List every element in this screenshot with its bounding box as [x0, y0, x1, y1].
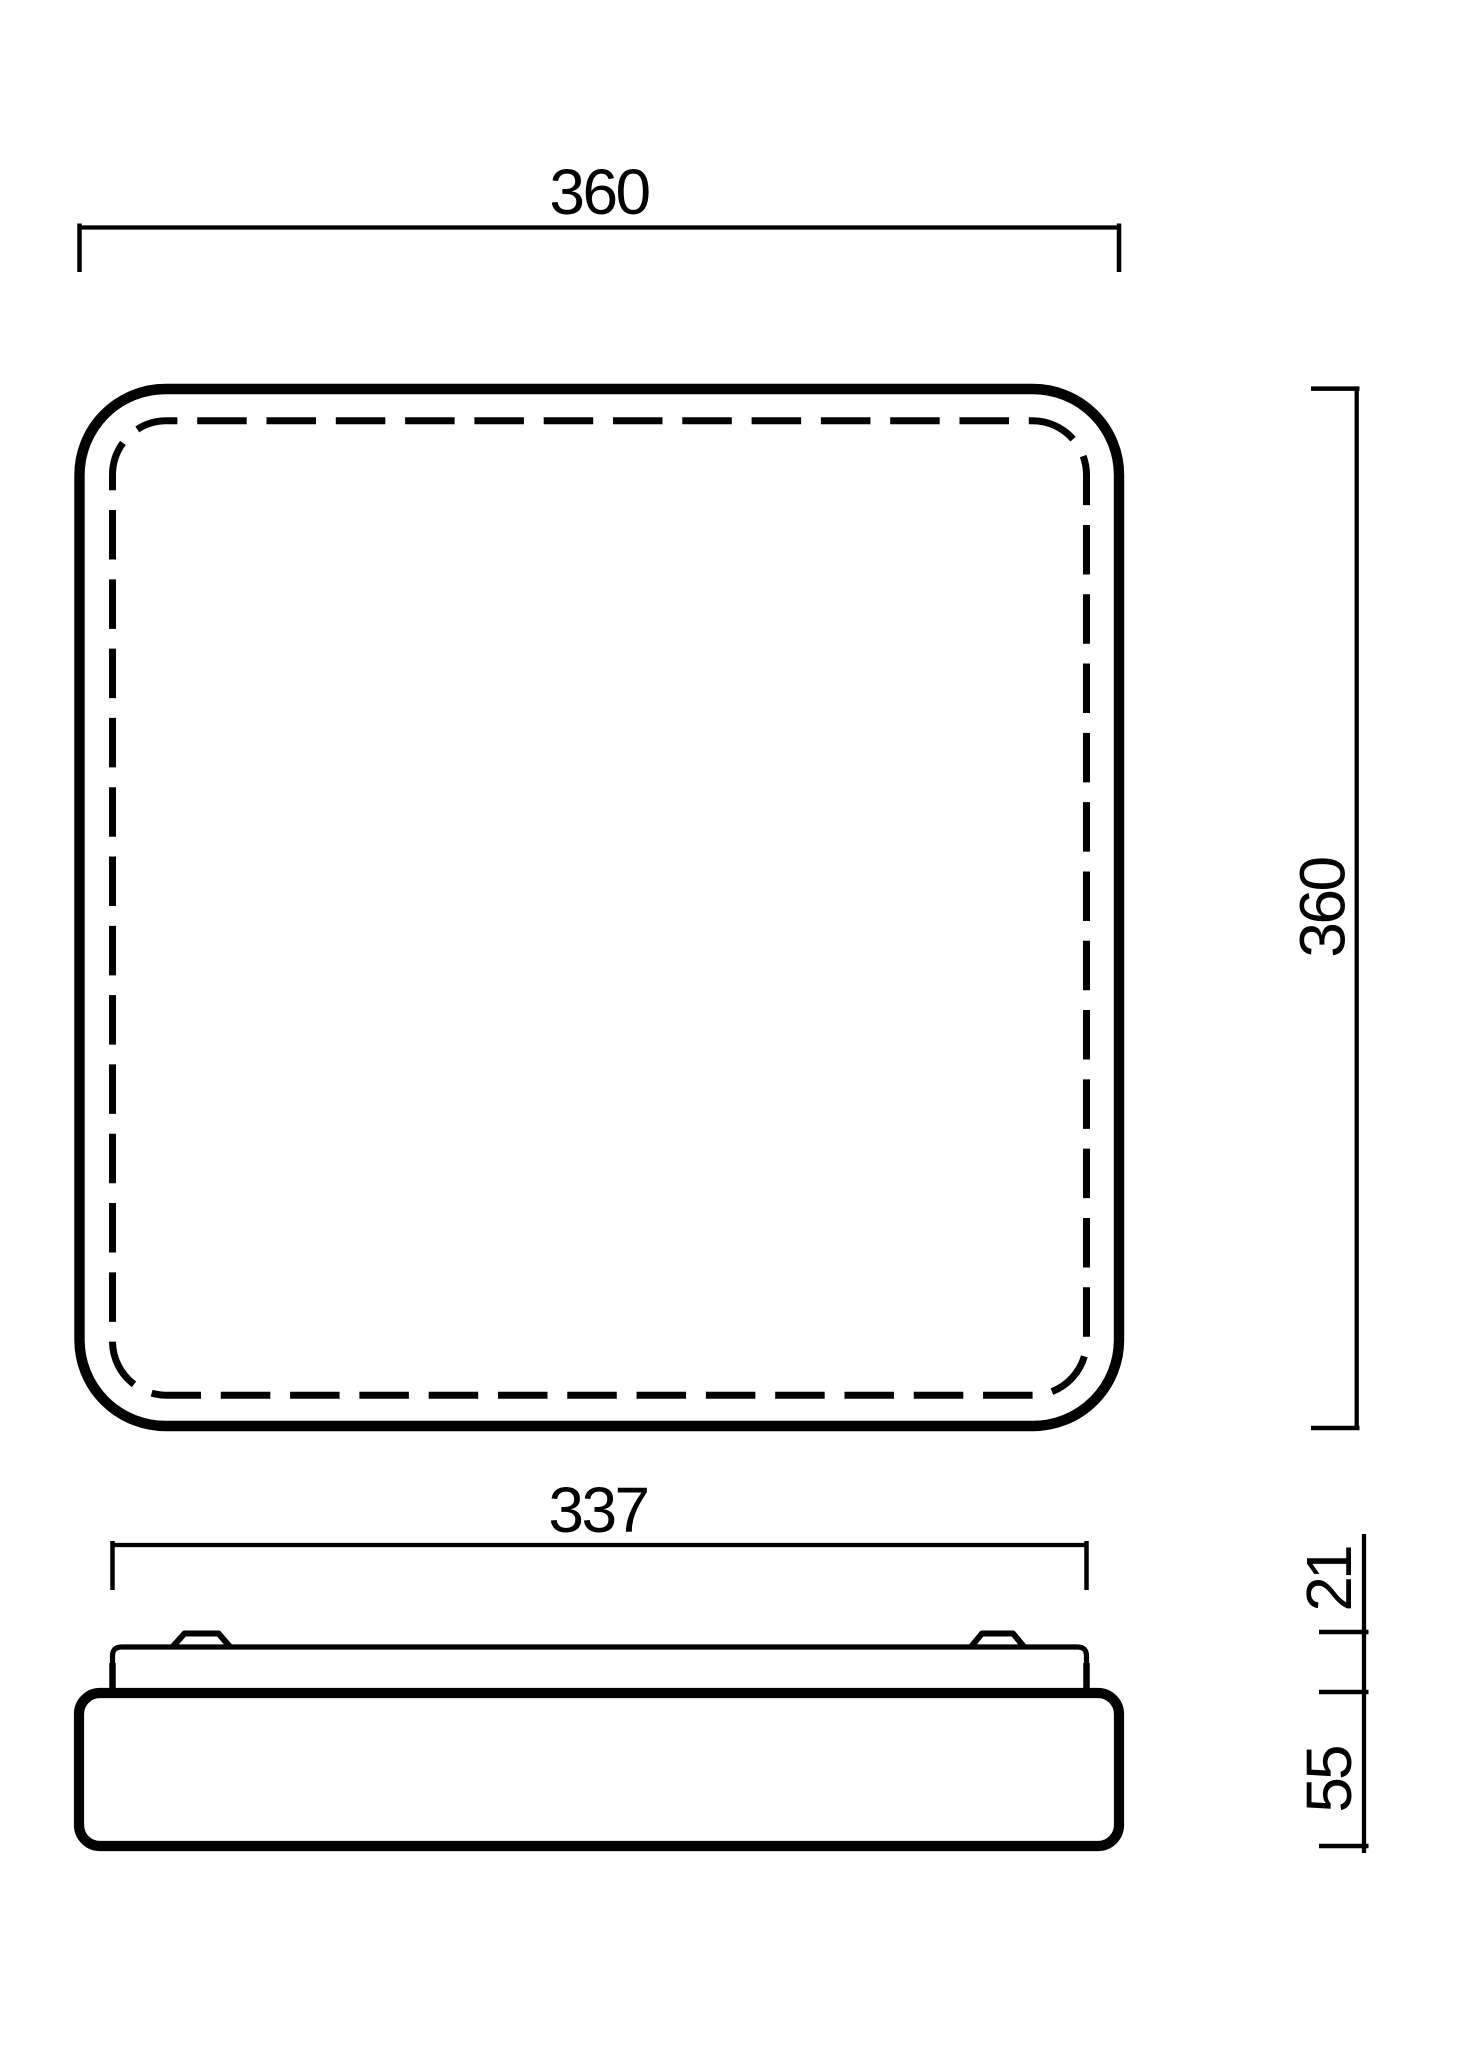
svg-text:337: 337 — [548, 1474, 647, 1546]
svg-text:360: 360 — [549, 156, 649, 228]
svg-text:55: 55 — [1293, 1747, 1365, 1813]
svg-text:21: 21 — [1293, 1547, 1365, 1612]
svg-text:360: 360 — [1287, 857, 1359, 957]
